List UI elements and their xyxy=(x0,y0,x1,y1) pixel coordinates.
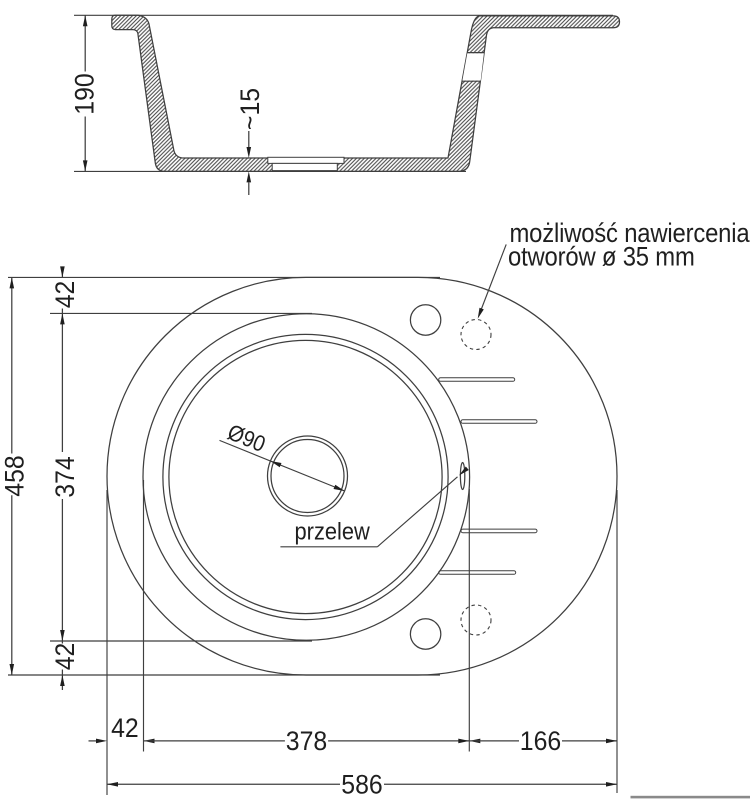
svg-text:42: 42 xyxy=(51,643,80,671)
svg-text:190: 190 xyxy=(71,73,100,114)
svg-text:otworów ø 35 mm: otworów ø 35 mm xyxy=(508,242,695,271)
svg-text:przelew: przelew xyxy=(295,517,371,544)
svg-text:374: 374 xyxy=(51,456,80,497)
svg-text:~15: ~15 xyxy=(236,88,265,130)
svg-text:586: 586 xyxy=(341,771,382,800)
svg-text:166: 166 xyxy=(520,727,561,756)
svg-text:Ø90: Ø90 xyxy=(224,419,269,457)
svg-text:458: 458 xyxy=(1,455,30,496)
svg-text:42: 42 xyxy=(111,714,139,743)
svg-text:42: 42 xyxy=(51,281,80,309)
svg-text:378: 378 xyxy=(286,727,327,756)
